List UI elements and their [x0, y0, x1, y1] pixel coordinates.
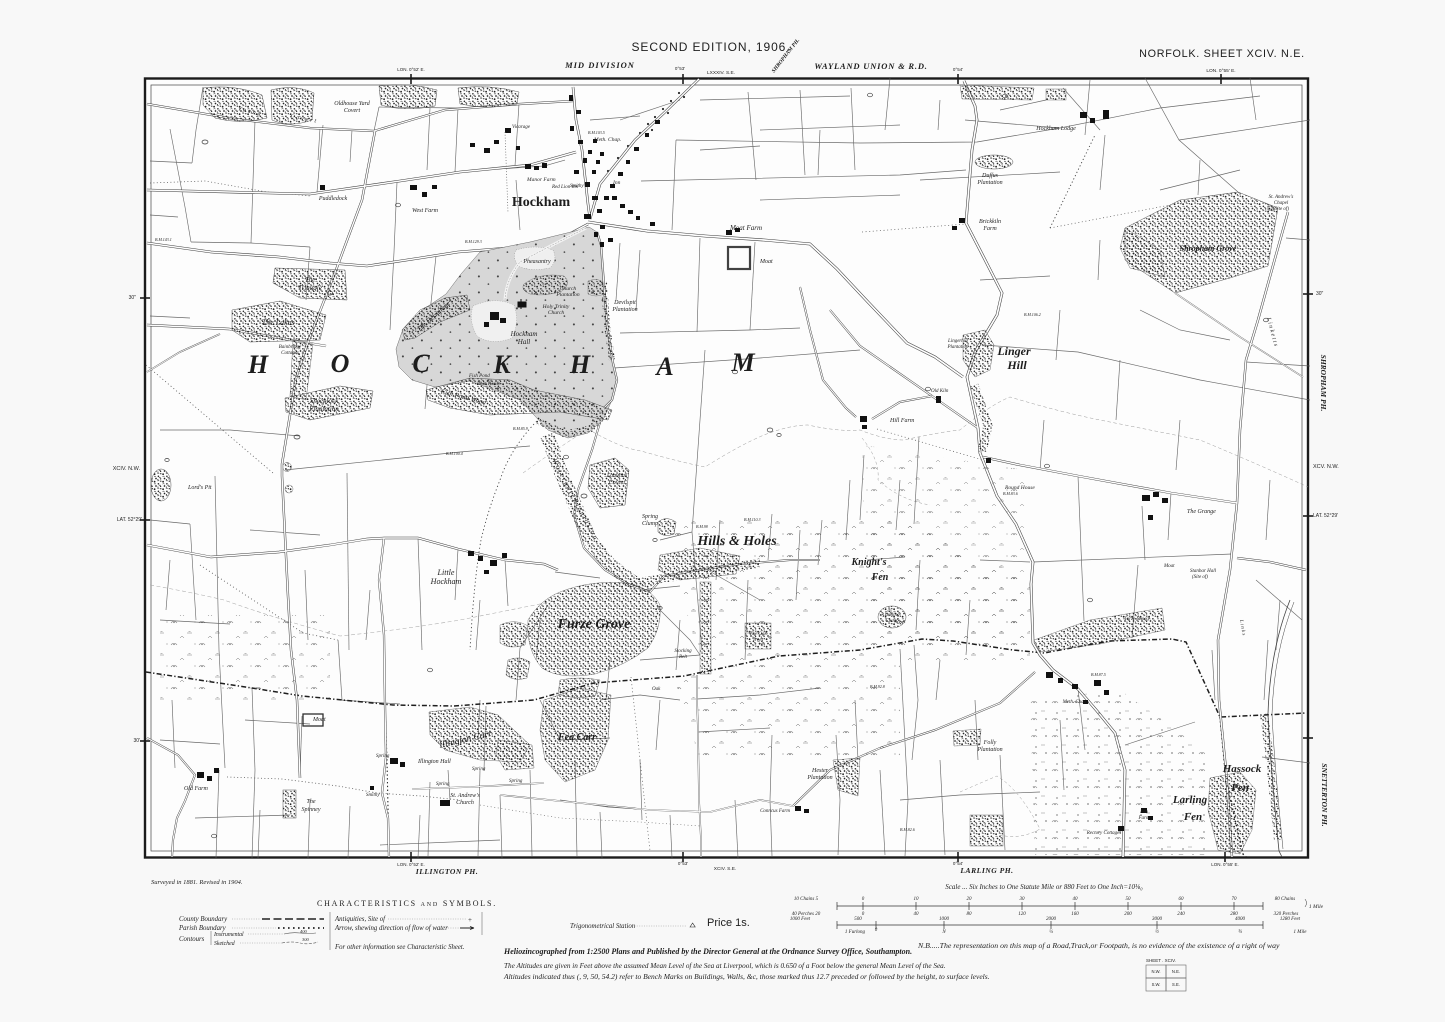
svg-text:30': 30': [133, 738, 140, 744]
svg-text:B.M.85.9: B.M.85.9: [513, 426, 528, 431]
svg-text:Plantation: Plantation: [806, 775, 832, 781]
svg-text:Lingerhill: Lingerhill: [947, 339, 969, 344]
svg-text:Spring: Spring: [472, 767, 486, 772]
svg-text:200: 200: [1124, 912, 1132, 917]
svg-text:XCIV. N.W.: XCIV. N.W.: [113, 466, 141, 472]
svg-text:Moat: Moat: [759, 259, 773, 265]
svg-text:Plantation: Plantation: [976, 180, 1002, 186]
svg-text:C: C: [412, 349, 430, 378]
svg-text:N.B.....The representation on: N.B.....The representation on this map o…: [917, 941, 1280, 950]
svg-text:B.M.82.6: B.M.82.6: [900, 827, 915, 832]
svg-text:Hockham Lodge: Hockham Lodge: [1035, 126, 1076, 132]
svg-text:Spring: Spring: [509, 779, 523, 784]
svg-text:Hockham: Hockham: [430, 577, 462, 586]
svg-text:ILLINGTON PH.: ILLINGTON PH.: [415, 867, 478, 876]
svg-text:Manor Farm: Manor Farm: [526, 177, 556, 183]
svg-text:Hockham: Hockham: [512, 195, 571, 210]
svg-text:Farm: Farm: [982, 226, 997, 232]
svg-text:3000: 3000: [1152, 917, 1163, 922]
svg-text:Church: Church: [548, 310, 565, 316]
svg-text:LAT. 52°29': LAT. 52°29': [117, 517, 142, 523]
svg-text:Folly: Folly: [983, 740, 997, 746]
svg-text:Covert: Covert: [609, 480, 626, 486]
svg-text:S.E.: S.E.: [1172, 982, 1180, 987]
svg-text:Hester: Hester: [811, 768, 829, 774]
svg-text:Shropham Grove: Shropham Grove: [1180, 244, 1237, 253]
svg-text:Illington Hall: Illington Hall: [417, 759, 451, 765]
svg-text:40: 40: [1073, 897, 1079, 902]
svg-text:50: 50: [1126, 897, 1132, 902]
svg-text:The Lakes: The Lakes: [262, 318, 295, 327]
svg-text:Moat: Moat: [312, 717, 326, 723]
svg-text:XCIV. S.E.: XCIV. S.E.: [714, 866, 737, 872]
svg-text:LON. 0°52' E.: LON. 0°52' E.: [397, 67, 424, 72]
svg-text:O: O: [331, 349, 350, 378]
svg-text:30": 30": [129, 295, 137, 301]
svg-text:B.M.110.3: B.M.110.3: [744, 517, 760, 522]
svg-text:Church: Church: [456, 800, 474, 806]
svg-text:Antiquities, Site of: Antiquities, Site of: [334, 916, 386, 923]
svg-text:Knight's: Knight's: [850, 557, 886, 568]
svg-text:Stanbar Hall: Stanbar Hall: [1190, 569, 1217, 574]
svg-text:M: M: [730, 348, 755, 377]
svg-text:1000: 1000: [939, 917, 950, 922]
svg-text:Plantation: Plantation: [946, 345, 969, 350]
svg-text:Scale ... Six Inches to One St: Scale ... Six Inches to One Statute Mile…: [945, 883, 1143, 891]
svg-text:1000 Feet: 1000 Feet: [790, 917, 811, 922]
svg-text:Arrow, shewing direction of fl: Arrow, shewing direction of flow of wate…: [334, 925, 448, 932]
svg-text:Old Kiln: Old Kiln: [931, 389, 949, 394]
svg-text:(Site of): (Site of): [1192, 575, 1208, 580]
svg-text:Price 1s.: Price 1s.: [707, 917, 750, 929]
svg-text:10: 10: [914, 897, 920, 902]
svg-text:Trees: Trees: [753, 638, 764, 643]
svg-text:Covert: Covert: [344, 108, 361, 114]
svg-text:Clump: Clump: [642, 521, 658, 527]
svg-text:Plantation: Plantation: [308, 405, 339, 413]
svg-text:Spring: Spring: [436, 782, 450, 787]
svg-text:The: The: [307, 799, 316, 805]
svg-text:The: The: [305, 276, 316, 284]
svg-text:H: H: [247, 350, 269, 379]
svg-text:Plantation: Plantation: [555, 292, 579, 298]
svg-text:Cottages: Cottages: [281, 351, 299, 356]
svg-text:Inn: Inn: [612, 180, 621, 186]
svg-text:LON. 0°55' E.: LON. 0°55' E.: [1206, 68, 1235, 74]
svg-text:Fea Carr: Fea Carr: [557, 732, 596, 743]
svg-text:400: 400: [300, 929, 308, 934]
svg-text:1280 Feet: 1280 Feet: [1280, 917, 1301, 922]
svg-text:B.M.92.8: B.M.92.8: [870, 684, 885, 689]
svg-text:Puddledock: Puddledock: [318, 196, 348, 202]
svg-text:B.M.129.3: B.M.129.3: [465, 239, 482, 244]
svg-text:Hill: Hill: [1006, 358, 1027, 372]
svg-text:Fen: Fen: [1139, 810, 1148, 815]
svg-text:Smithy: Smithy: [570, 184, 584, 189]
svg-text:Oak: Oak: [652, 687, 661, 692]
svg-text:500: 500: [854, 917, 862, 922]
svg-text:XCV. N.W.: XCV. N.W.: [1313, 464, 1339, 470]
svg-text:B.M.106.2: B.M.106.2: [1024, 312, 1041, 317]
svg-text:Spinney: Spinney: [302, 807, 321, 813]
svg-text:4000: 4000: [1235, 917, 1246, 922]
svg-text:Hill Farm: Hill Farm: [889, 418, 915, 424]
svg-text:160: 160: [1071, 912, 1079, 917]
svg-text:Sheeplock: Sheeplock: [310, 397, 339, 405]
svg-text:The Grange: The Grange: [1187, 509, 1216, 515]
svg-text:Trigonometrical Station: Trigonometrical Station: [570, 923, 636, 930]
svg-text:10 Chains 5: 10 Chains 5: [794, 897, 819, 902]
svg-text:S.W.: S.W.: [1152, 982, 1161, 987]
svg-text:1 Mile: 1 Mile: [1309, 904, 1324, 910]
svg-text:Meth. Chap.: Meth. Chap.: [1062, 700, 1088, 705]
svg-text:For other information see Char: For other information see Characteristic…: [334, 944, 465, 951]
svg-text:Larling: Larling: [1172, 794, 1208, 806]
svg-text:Fen: Fen: [1183, 811, 1202, 823]
svg-text:Larling: Larling: [883, 613, 900, 618]
svg-text:The Altitudes are given in Fee: The Altitudes are given in Feet above th…: [504, 962, 946, 970]
svg-text:SHROPHAM PH.: SHROPHAM PH.: [1319, 355, 1328, 412]
svg-text:Conncus Farm: Conncus Farm: [760, 809, 790, 814]
svg-text:Instrumental: Instrumental: [213, 932, 244, 938]
svg-text:Little: Little: [437, 568, 455, 577]
svg-text:B.M.143.1: B.M.143.1: [155, 237, 172, 242]
svg-text:120: 120: [1018, 912, 1026, 917]
svg-text:WAYLAND UNION & R.D.: WAYLAND UNION & R.D.: [814, 61, 927, 71]
svg-text:LAT. 52°29': LAT. 52°29': [1313, 513, 1338, 519]
svg-text:(Site of): (Site of): [1273, 207, 1289, 212]
svg-text:Oldhouse Yard: Oldhouse Yard: [334, 101, 370, 107]
svg-text:Sketched: Sketched: [214, 941, 235, 947]
svg-text:Turze Mousy: Turze Mousy: [1124, 617, 1150, 622]
svg-text:B.M.83.6: B.M.83.6: [1003, 491, 1018, 496]
svg-text:N: N: [941, 930, 946, 935]
svg-text:Hall: Hall: [517, 338, 531, 346]
svg-text:Fish Pond: Fish Pond: [468, 374, 490, 379]
svg-text:SHEET . XCIV.: SHEET . XCIV.: [1146, 958, 1176, 963]
svg-text:Bainbridge: Bainbridge: [279, 345, 302, 350]
svg-text:Parish Boundary: Parish Boundary: [178, 925, 227, 932]
svg-text:K: K: [492, 350, 512, 379]
svg-text:1 Furlong: 1 Furlong: [845, 930, 866, 935]
svg-text:Lord's Pit: Lord's Pit: [187, 485, 212, 491]
svg-text:30: 30: [1020, 897, 1026, 902]
svg-text:Farm: Farm: [1137, 816, 1150, 821]
svg-text:CHARACTERISTICS AND SYMBOLS.: CHARACTERISTICS AND SYMBOLS.: [317, 899, 497, 908]
svg-text:Contours: Contours: [179, 936, 205, 943]
svg-text:Spring: Spring: [376, 754, 390, 759]
svg-text:80 Chains: 80 Chains: [1275, 897, 1295, 902]
svg-text:Hockham: Hockham: [510, 330, 538, 338]
svg-text:The Oak: The Oak: [749, 632, 767, 637]
svg-text:County Boundary: County Boundary: [179, 916, 228, 923]
svg-text:NORFOLK. SHEET XCIV. N.E.: NORFOLK. SHEET XCIV. N.E.: [1139, 48, 1305, 60]
svg-text:Moat: Moat: [1163, 564, 1175, 569]
svg-text:LARLING PH.: LARLING PH.: [959, 866, 1013, 875]
svg-text:H: H: [569, 350, 591, 379]
svg-text:Pen: Pen: [1231, 782, 1249, 794]
svg-text:B.M.98: B.M.98: [696, 524, 708, 529]
svg-text:B.M.103.5: B.M.103.5: [588, 130, 605, 135]
svg-text:¼: ¼: [1049, 930, 1053, 935]
svg-text:A: A: [654, 352, 673, 381]
svg-text:Hills & Holes: Hills & Holes: [696, 534, 777, 549]
svg-text:Fen: Fen: [871, 572, 889, 583]
svg-text:West Farm: West Farm: [412, 208, 439, 214]
svg-text:40: 40: [914, 912, 920, 917]
svg-text:Plantation: Plantation: [976, 747, 1002, 753]
svg-text:LON. 0°55' E.: LON. 0°55' E.: [1211, 862, 1238, 867]
svg-text:N.E.: N.E.: [1172, 969, 1180, 974]
svg-text:Spring: Spring: [642, 514, 658, 520]
svg-text:½: ½: [1155, 930, 1159, 935]
svg-text:Boat House: Boat House: [477, 382, 501, 387]
svg-text:300: 300: [302, 937, 310, 942]
svg-text:Devilspit: Devilspit: [613, 300, 636, 306]
svg-text:240: 240: [1177, 912, 1185, 917]
svg-text:Chapel: Chapel: [1274, 201, 1289, 206]
svg-text:80: 80: [967, 912, 973, 917]
svg-text:Brickkiln: Brickkiln: [979, 219, 1001, 225]
svg-text:B.M.87.5: B.M.87.5: [1091, 672, 1106, 677]
svg-text:Clump: Clump: [885, 619, 899, 624]
svg-text:SECOND EDITION, 1906.: SECOND EDITION, 1906.: [632, 40, 791, 54]
svg-text:Lammas: Lammas: [606, 473, 628, 479]
svg-text:Rectory Cottages: Rectory Cottages: [1086, 831, 1122, 836]
svg-text:Stocking: Stocking: [674, 649, 692, 654]
svg-text:2000: 2000: [1046, 917, 1057, 922]
svg-text:Belt: Belt: [679, 655, 688, 660]
svg-text:Surveyed in 1881. Revised in: Surveyed in 1881. Revised in 1904.: [151, 879, 243, 886]
svg-text:Plantation: Plantation: [611, 307, 637, 313]
svg-text:St. Andrew's: St. Andrew's: [1269, 195, 1294, 200]
svg-text:Pheasantry: Pheasantry: [522, 259, 551, 265]
svg-text:1 Mile: 1 Mile: [1294, 930, 1308, 935]
svg-text:Old Farm: Old Farm: [184, 786, 209, 792]
svg-text:Linger: Linger: [996, 344, 1031, 358]
svg-text:Altitudes indicated thus (, 9,: Altitudes indicated thus (, 9, 50, 54.2)…: [503, 972, 990, 981]
svg-text:Hassock: Hassock: [1222, 763, 1262, 775]
svg-text:30": 30": [1316, 291, 1324, 297]
svg-text:+: +: [468, 916, 472, 924]
svg-text:St. Andrew's: St. Andrew's: [450, 793, 480, 799]
svg-text:Duffus: Duffus: [981, 172, 999, 179]
svg-text:B.M.100.4: B.M.100.4: [446, 451, 463, 456]
svg-text:LXXXIV. S.E.: LXXXIV. S.E.: [707, 70, 735, 76]
svg-text:Vicarage: Vicarage: [512, 125, 531, 130]
svg-text:60: 60: [1179, 897, 1185, 902]
svg-text:0°53': 0°53': [678, 861, 688, 866]
svg-text:¾: ¾: [1238, 930, 1242, 935]
svg-text:MID DIVISION: MID DIVISION: [564, 60, 635, 70]
svg-text:0°53': 0°53': [675, 66, 685, 71]
svg-text:SNETTERTON PH.: SNETTERTON PH.: [1320, 763, 1329, 826]
svg-text:Furze Grove: Furze Grove: [557, 617, 631, 632]
svg-text:20: 20: [967, 897, 973, 902]
svg-text:N.W.: N.W.: [1151, 969, 1160, 974]
svg-text:Meth. Chap.: Meth. Chap.: [593, 137, 621, 143]
svg-text:0°54': 0°54': [953, 67, 963, 72]
svg-text:Heliozincographed from 1:2500: Heliozincographed from 1:2500 Plans and …: [503, 947, 912, 956]
svg-text:Triangle: Triangle: [298, 284, 322, 292]
svg-text:70: 70: [1232, 897, 1238, 902]
svg-text:Moat Farm: Moat Farm: [729, 224, 762, 232]
svg-text:Smithy: Smithy: [366, 793, 380, 798]
